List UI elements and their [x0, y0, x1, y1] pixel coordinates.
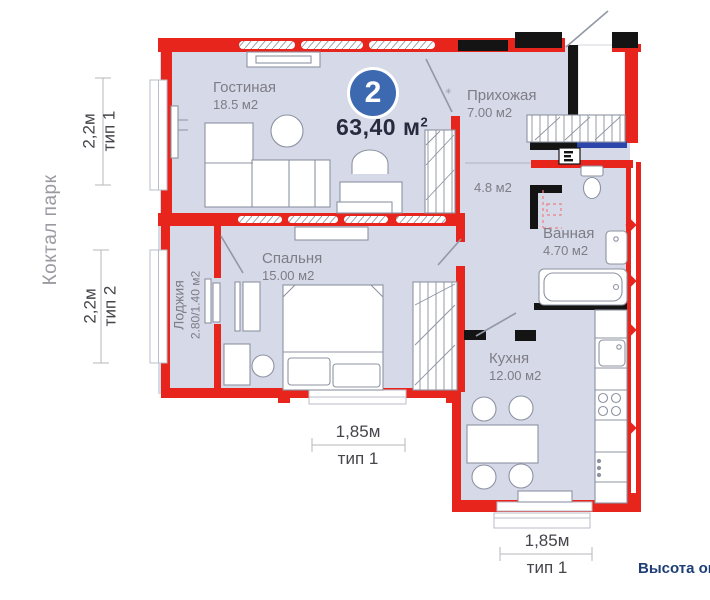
location-side-label: Коктал парк: [40, 175, 62, 286]
dimension-value: 2,2м: [80, 286, 100, 327]
dimension-left-bottom: 2,2м тип 2: [80, 286, 119, 327]
room-area: 15.00 м2: [262, 268, 322, 285]
room-area: 2.80/1.40 м2: [188, 271, 203, 339]
room-name: Лоджия: [170, 271, 188, 339]
dimension-bottom-kitchen-value: 1,85м: [525, 531, 570, 551]
dimension-type: тип 2: [100, 286, 120, 327]
dimension-bottom-bedroom-type: тип 1: [338, 449, 379, 469]
room-area: 12.00 м2: [489, 368, 541, 385]
bedroom-wardrobe: [413, 282, 457, 390]
hallway-closet: [527, 115, 625, 142]
room-label-corridor: 4.8 м2: [474, 180, 512, 197]
rooms-count: 2: [365, 76, 382, 110]
room-name: Прихожая: [467, 86, 537, 105]
living-wardrobe: [425, 130, 455, 213]
room-label-bedroom: Спальня 15.00 м2: [262, 249, 322, 285]
floor-plan-page: Коктал парк 2,2м тип 1 2,2м тип 2 1,85м …: [0, 0, 710, 600]
room-label-hallway: Прихожая 7.00 м2: [467, 86, 537, 122]
entry-star-marker: ✳: [445, 87, 452, 96]
total-area-sup: 2: [420, 114, 428, 129]
room-name: Кухня: [489, 349, 541, 368]
total-area-value: 63,40 м: [336, 114, 420, 140]
room-name: Ванная: [543, 224, 594, 243]
dimension-value: 2,2м: [79, 111, 99, 152]
dimension-bottom-bedroom-value: 1,85м: [336, 422, 381, 442]
rooms-count-badge: 2: [350, 70, 396, 116]
electrical-panel-icon: [559, 148, 580, 164]
dimension-left-top: 2,2м тип 1: [79, 111, 118, 152]
room-area: 7.00 м2: [467, 105, 537, 122]
room-area: 4.8 м2: [474, 180, 512, 197]
room-label-living: Гостиная 18.5 м2: [213, 78, 276, 114]
room-name: Гостиная: [213, 78, 276, 97]
room-area: 18.5 м2: [213, 97, 276, 114]
dimension-type: тип 1: [99, 111, 119, 152]
room-label-loggia: Лоджия 2.80/1.40 м2: [170, 271, 203, 339]
ceiling-height-note: Высота ок: [638, 560, 710, 577]
dimension-bottom-kitchen-type: тип 1: [527, 558, 568, 578]
room-name: Спальня: [262, 249, 322, 268]
room-label-bathroom: Ванная 4.70 м2: [543, 224, 594, 260]
room-label-kitchen: Кухня 12.00 м2: [489, 349, 541, 385]
total-area-label: 63,40 м2: [336, 114, 428, 141]
room-area: 4.70 м2: [543, 243, 594, 260]
